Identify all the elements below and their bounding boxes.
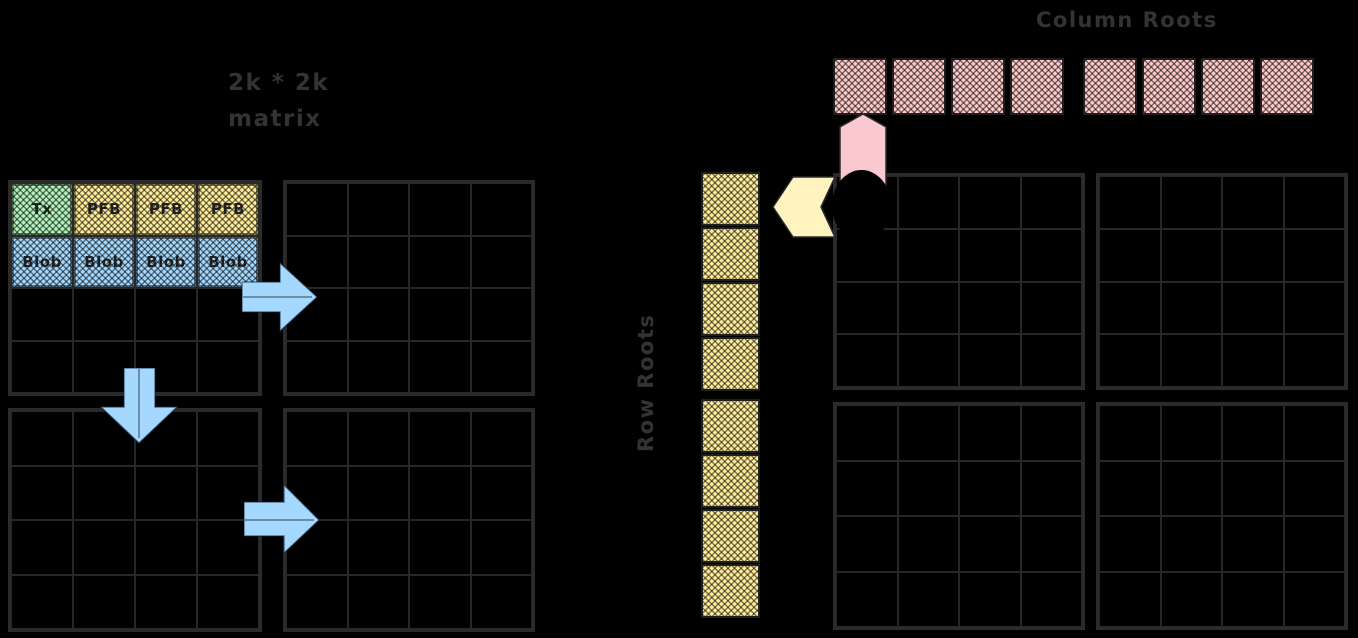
row-roots-square	[701, 454, 760, 508]
matrix-cell	[286, 411, 348, 466]
matrix-cell	[1222, 334, 1284, 387]
matrix-cell	[1284, 405, 1346, 461]
matrix-cell	[898, 405, 960, 461]
matrix-cell	[836, 405, 898, 461]
matrix-cell	[898, 229, 960, 282]
matrix-cell	[409, 183, 471, 236]
matrix-cell	[11, 411, 73, 466]
matrix-cell	[1222, 405, 1284, 461]
matrix-cell	[959, 334, 1021, 387]
matrix-cell	[409, 341, 471, 394]
matrix-cell	[471, 236, 533, 289]
matrix-cell	[898, 176, 960, 229]
matrix-cell	[73, 575, 135, 630]
matrix-cell	[898, 516, 960, 572]
matrix-cell	[1222, 572, 1284, 628]
row-roots-label: Row Roots	[634, 322, 658, 444]
pfb-cell: PFB	[197, 183, 259, 236]
matrix-size-line1: 2k * 2k	[228, 66, 329, 102]
matrix-cell	[135, 466, 197, 521]
matrix-cell	[471, 183, 533, 236]
matrix-cell	[1161, 572, 1223, 628]
matrix-cell	[471, 466, 533, 521]
column-roots-row	[833, 58, 1319, 115]
matrix-cell	[348, 411, 410, 466]
matrix-cell	[1284, 282, 1346, 335]
blob-cell: Blob	[135, 236, 197, 289]
column-roots-square	[892, 58, 946, 115]
matrix-cell	[1222, 176, 1284, 229]
matrix-cell	[348, 288, 410, 341]
matrix-cell	[286, 575, 348, 630]
matrix-cell	[11, 341, 73, 394]
matrix-cell	[1161, 334, 1223, 387]
matrix-cell	[1222, 282, 1284, 335]
row-roots-square	[701, 564, 760, 618]
matrix-cell	[348, 520, 410, 575]
matrix-cell	[409, 520, 471, 575]
matrix-cell	[1021, 572, 1083, 628]
diagram-canvas: 2k * 2k matrix TxPFBPFBPFBBlobBlobBlobBl…	[0, 0, 1358, 638]
matrix-cell	[1161, 405, 1223, 461]
matrix-cell	[11, 575, 73, 630]
left-quadrant-top-left: TxPFBPFBPFBBlobBlobBlobBlob	[8, 180, 262, 396]
matrix-cell	[1284, 176, 1346, 229]
column-roots-square	[1083, 58, 1137, 115]
right-quadrant-bottom-left	[833, 402, 1085, 630]
matrix-cell	[348, 466, 410, 521]
matrix-cell	[1222, 229, 1284, 282]
matrix-cell	[1021, 282, 1083, 335]
matrix-cell	[959, 516, 1021, 572]
matrix-size-label: 2k * 2k matrix	[228, 66, 329, 137]
matrix-cell	[11, 520, 73, 575]
matrix-cell	[959, 461, 1021, 517]
matrix-cell	[1099, 572, 1161, 628]
matrix-cell	[1161, 282, 1223, 335]
row-roots-square	[701, 337, 760, 391]
matrix-cell	[409, 288, 471, 341]
matrix-cell	[197, 575, 259, 630]
right-quadrant-bottom-right	[1096, 402, 1348, 630]
matrix-cell	[197, 411, 259, 466]
matrix-cell	[11, 288, 73, 341]
matrix-cell	[898, 572, 960, 628]
column-roots-label: Column Roots	[1036, 8, 1218, 32]
matrix-cell	[409, 575, 471, 630]
matrix-cell	[471, 288, 533, 341]
matrix-cell	[1099, 334, 1161, 387]
matrix-cell	[1284, 461, 1346, 517]
tx-cell: Tx	[11, 183, 73, 236]
matrix-cell	[1222, 516, 1284, 572]
matrix-cell	[1099, 405, 1161, 461]
matrix-cell	[836, 516, 898, 572]
matrix-cell	[898, 461, 960, 517]
matrix-cell	[1161, 229, 1223, 282]
matrix-cell	[286, 183, 348, 236]
matrix-cell	[959, 572, 1021, 628]
matrix-cell	[1099, 176, 1161, 229]
matrix-cell	[959, 229, 1021, 282]
matrix-cell	[11, 466, 73, 521]
black-dot	[832, 170, 891, 241]
matrix-cell	[471, 411, 533, 466]
row-roots-square	[701, 509, 760, 563]
matrix-cell	[409, 411, 471, 466]
matrix-cell	[898, 282, 960, 335]
matrix-cell	[836, 334, 898, 387]
matrix-size-line2: matrix	[228, 102, 329, 138]
matrix-cell	[959, 176, 1021, 229]
matrix-cell	[1161, 516, 1223, 572]
matrix-cell	[348, 183, 410, 236]
matrix-cell	[73, 520, 135, 575]
matrix-cell	[286, 341, 348, 394]
matrix-cell	[1222, 461, 1284, 517]
matrix-cell	[409, 466, 471, 521]
matrix-cell	[471, 520, 533, 575]
matrix-cell	[197, 341, 259, 394]
column-roots-square	[951, 58, 1005, 115]
matrix-cell	[135, 575, 197, 630]
flow-arrow-right-bottom	[244, 484, 320, 554]
matrix-cell	[73, 466, 135, 521]
column-roots-square	[833, 58, 887, 115]
matrix-cell	[1284, 334, 1346, 387]
matrix-cell	[348, 236, 410, 289]
matrix-cell	[348, 341, 410, 394]
right-quadrant-top-right	[1096, 173, 1348, 390]
column-roots-square	[1201, 58, 1255, 115]
row-roots-column	[701, 172, 760, 619]
left-quadrant-top-right	[283, 180, 535, 396]
matrix-cell	[1161, 461, 1223, 517]
matrix-cell	[471, 341, 533, 394]
matrix-cell	[836, 282, 898, 335]
matrix-cell	[1161, 176, 1223, 229]
matrix-cell	[959, 282, 1021, 335]
matrix-cell	[1099, 516, 1161, 572]
matrix-cell	[1021, 461, 1083, 517]
matrix-cell	[959, 405, 1021, 461]
matrix-cell	[348, 575, 410, 630]
matrix-cell	[409, 236, 471, 289]
blob-cell: Blob	[11, 236, 73, 289]
matrix-cell	[836, 461, 898, 517]
pfb-cell: PFB	[135, 183, 197, 236]
matrix-cell	[1099, 461, 1161, 517]
row-roots-square	[701, 282, 760, 336]
matrix-cell	[1284, 229, 1346, 282]
matrix-cell	[836, 572, 898, 628]
matrix-cell	[471, 575, 533, 630]
column-roots-square	[1260, 58, 1314, 115]
flow-arrow-down	[100, 368, 178, 444]
row-roots-square	[701, 399, 760, 453]
matrix-cell	[1021, 176, 1083, 229]
row-roots-square	[701, 172, 760, 226]
row-roots-square	[701, 227, 760, 281]
matrix-cell	[135, 520, 197, 575]
matrix-cell	[1099, 282, 1161, 335]
matrix-cell	[135, 288, 197, 341]
matrix-cell	[1021, 516, 1083, 572]
matrix-cell	[898, 334, 960, 387]
matrix-cell	[1021, 334, 1083, 387]
blob-cell: Blob	[73, 236, 135, 289]
matrix-cell	[1284, 516, 1346, 572]
flow-arrow-right-top	[242, 262, 318, 332]
column-roots-square	[1010, 58, 1064, 115]
left-quadrant-bottom-right	[283, 408, 535, 632]
matrix-cell	[1099, 229, 1161, 282]
pfb-cell: PFB	[73, 183, 135, 236]
column-roots-square	[1142, 58, 1196, 115]
matrix-cell	[1284, 572, 1346, 628]
matrix-cell	[1021, 229, 1083, 282]
matrix-cell	[73, 288, 135, 341]
matrix-cell	[1021, 405, 1083, 461]
row-root-extract-arrow-left	[772, 176, 836, 238]
